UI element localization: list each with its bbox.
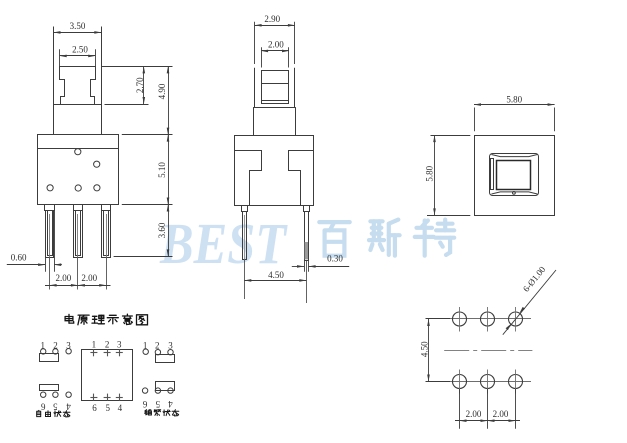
svg-text:1: 1 — [92, 340, 97, 350]
svg-text:4.90: 4.90 — [157, 83, 167, 99]
svg-text:3: 3 — [117, 340, 122, 350]
svg-text:6: 6 — [92, 403, 97, 413]
svg-text:2.70: 2.70 — [135, 77, 145, 93]
svg-text:0.60: 0.60 — [11, 253, 27, 263]
svg-text:5.80: 5.80 — [506, 95, 522, 105]
svg-text:4.50: 4.50 — [268, 270, 284, 280]
svg-text:4: 4 — [168, 399, 173, 409]
svg-text:5.80: 5.80 — [425, 165, 435, 181]
svg-text:6: 6 — [40, 401, 45, 411]
svg-text:2.00: 2.00 — [268, 39, 284, 49]
svg-text:2.00: 2.00 — [81, 273, 97, 283]
svg-text:4: 4 — [66, 401, 71, 411]
svg-text:4.50: 4.50 — [420, 341, 430, 357]
svg-text:0.30: 0.30 — [327, 253, 343, 263]
svg-text:2: 2 — [155, 340, 160, 350]
svg-text:5: 5 — [53, 401, 58, 411]
svg-text:3.60: 3.60 — [157, 222, 167, 238]
svg-text:3.50: 3.50 — [70, 21, 86, 31]
svg-text:2.00: 2.00 — [466, 409, 482, 419]
svg-text:2.90: 2.90 — [264, 14, 280, 24]
svg-text:2.00: 2.00 — [56, 273, 72, 283]
svg-text:2.50: 2.50 — [72, 45, 88, 55]
svg-text:2.00: 2.00 — [493, 409, 509, 419]
svg-text:5.10: 5.10 — [157, 162, 167, 178]
svg-text:4: 4 — [118, 403, 123, 413]
svg-text:5: 5 — [105, 403, 110, 413]
svg-text:6: 6 — [142, 399, 147, 409]
svg-text:3: 3 — [168, 340, 173, 350]
svg-text:BEST: BEST — [159, 211, 288, 276]
svg-text:2: 2 — [105, 340, 110, 350]
svg-text:5: 5 — [155, 399, 160, 409]
